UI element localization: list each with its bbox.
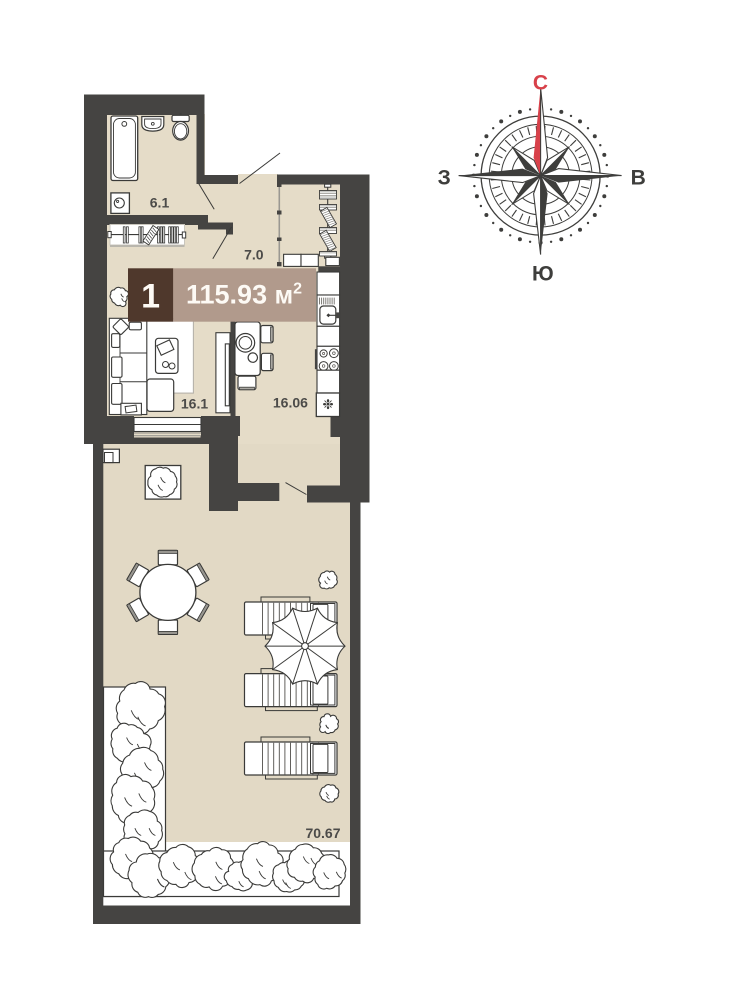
svg-text:❉: ❉ [322, 397, 334, 412]
svg-text:16.06: 16.06 [273, 395, 308, 411]
svg-text:6.1: 6.1 [150, 195, 170, 211]
svg-text:115.93 м2: 115.93 м2 [186, 280, 302, 310]
svg-text:70.67: 70.67 [305, 825, 340, 841]
svg-text:7.0: 7.0 [244, 247, 264, 263]
svg-text:Ю: Ю [532, 263, 554, 286]
svg-text:С: С [533, 72, 548, 95]
svg-text:В: В [631, 167, 646, 190]
svg-text:16.1: 16.1 [181, 396, 208, 412]
svg-text:1: 1 [141, 278, 160, 316]
svg-text:З: З [438, 167, 451, 190]
